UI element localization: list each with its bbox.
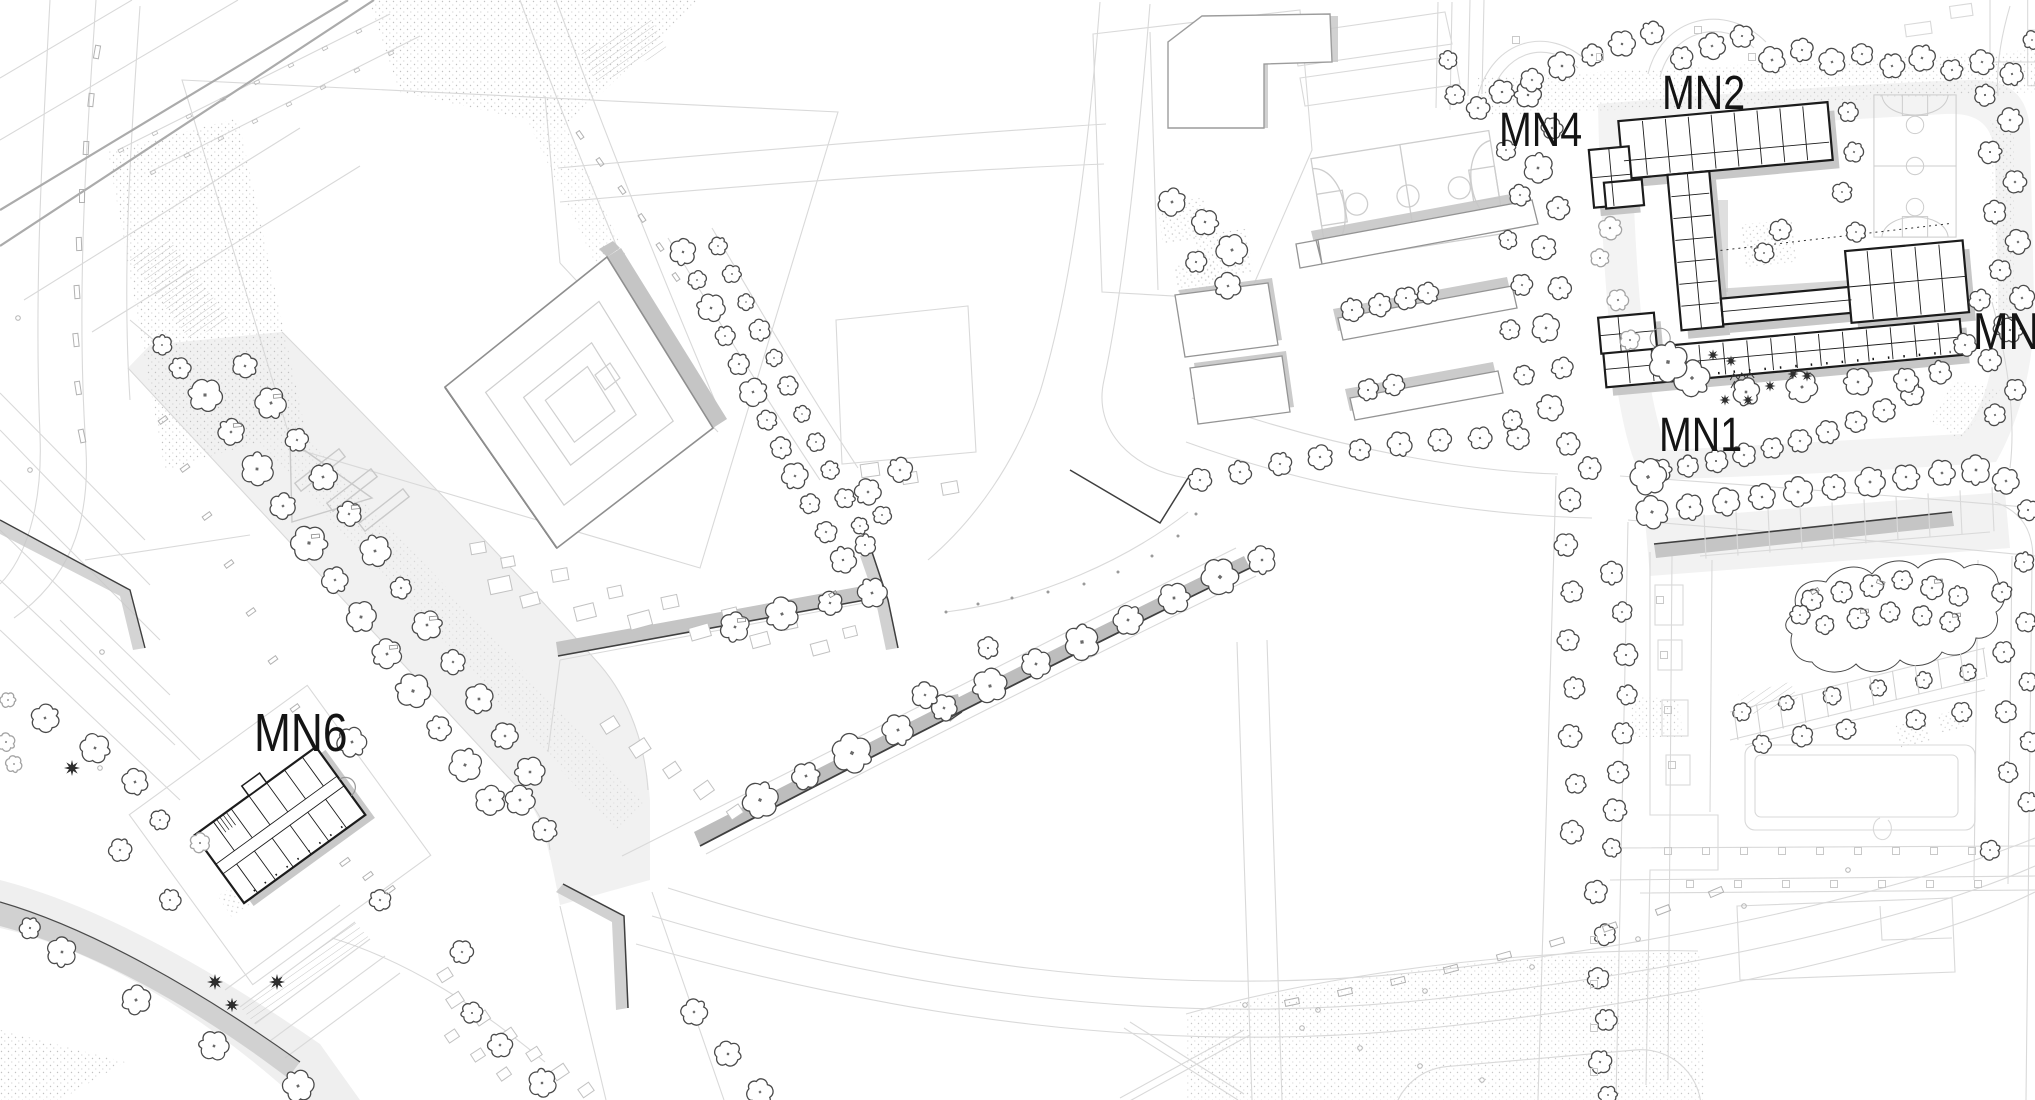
label-mn1: MN1 bbox=[1659, 412, 1742, 460]
label-mn4: MN4 bbox=[1499, 107, 1582, 155]
site-plan-canvas bbox=[0, 0, 2035, 1100]
label-mn-edge: MN bbox=[1973, 306, 2035, 358]
label-mn2: MN2 bbox=[1662, 70, 1745, 118]
label-mn6: MN6 bbox=[254, 706, 347, 760]
site-plan: MN2 MN4 MN1 MN6 MN bbox=[0, 0, 2035, 1100]
